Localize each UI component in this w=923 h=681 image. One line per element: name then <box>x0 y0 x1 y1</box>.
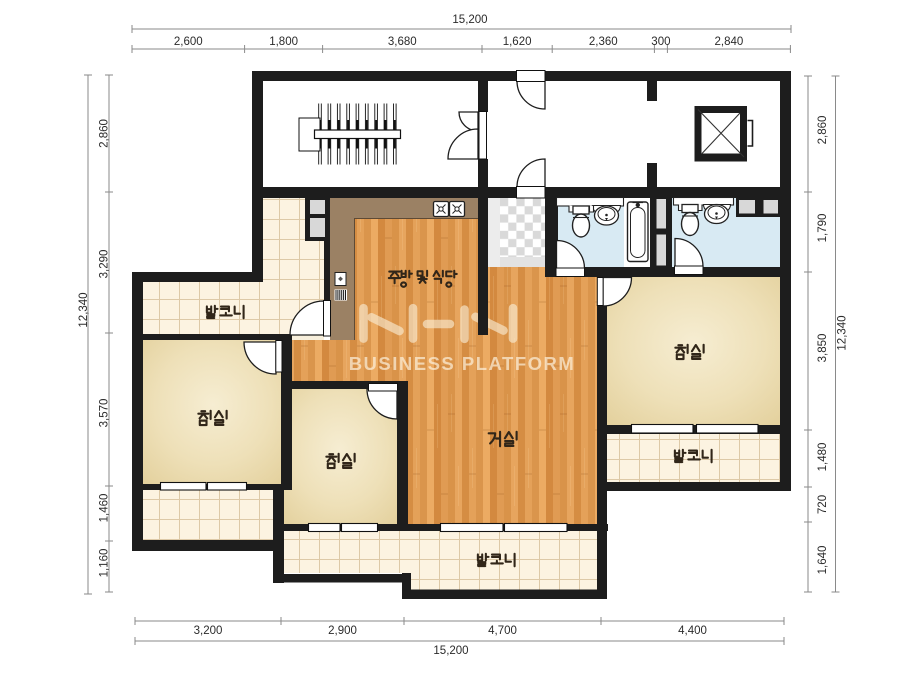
svg-text:15,200: 15,200 <box>433 645 468 657</box>
svg-text:4,400: 4,400 <box>678 625 707 637</box>
svg-text:2,600: 2,600 <box>174 36 203 48</box>
svg-text:1,160: 1,160 <box>99 549 111 578</box>
svg-text:3,850: 3,850 <box>817 334 829 363</box>
svg-text:3,290: 3,290 <box>99 250 111 279</box>
svg-text:4,700: 4,700 <box>488 625 517 637</box>
svg-text:2,900: 2,900 <box>328 625 357 637</box>
svg-text:2,360: 2,360 <box>589 36 618 48</box>
svg-text:1,790: 1,790 <box>817 214 829 243</box>
svg-text:1,640: 1,640 <box>817 546 829 575</box>
svg-text:12,340: 12,340 <box>837 315 849 350</box>
svg-text:2,860: 2,860 <box>817 116 829 145</box>
svg-text:2,860: 2,860 <box>99 119 111 148</box>
svg-text:720: 720 <box>817 495 829 514</box>
svg-text:12,340: 12,340 <box>78 292 90 327</box>
svg-text:3,570: 3,570 <box>99 399 111 428</box>
svg-text:BUSINESS PLATFORM: BUSINESS PLATFORM <box>349 353 576 374</box>
svg-text:3,200: 3,200 <box>194 625 223 637</box>
svg-text:1,460: 1,460 <box>99 494 111 523</box>
svg-text:1,800: 1,800 <box>269 36 298 48</box>
svg-text:1,620: 1,620 <box>503 36 532 48</box>
svg-text:15,200: 15,200 <box>452 14 487 26</box>
svg-text:1,480: 1,480 <box>817 443 829 472</box>
svg-text:3,680: 3,680 <box>388 36 417 48</box>
svg-text:300: 300 <box>651 36 670 48</box>
svg-text:2,840: 2,840 <box>715 36 744 48</box>
